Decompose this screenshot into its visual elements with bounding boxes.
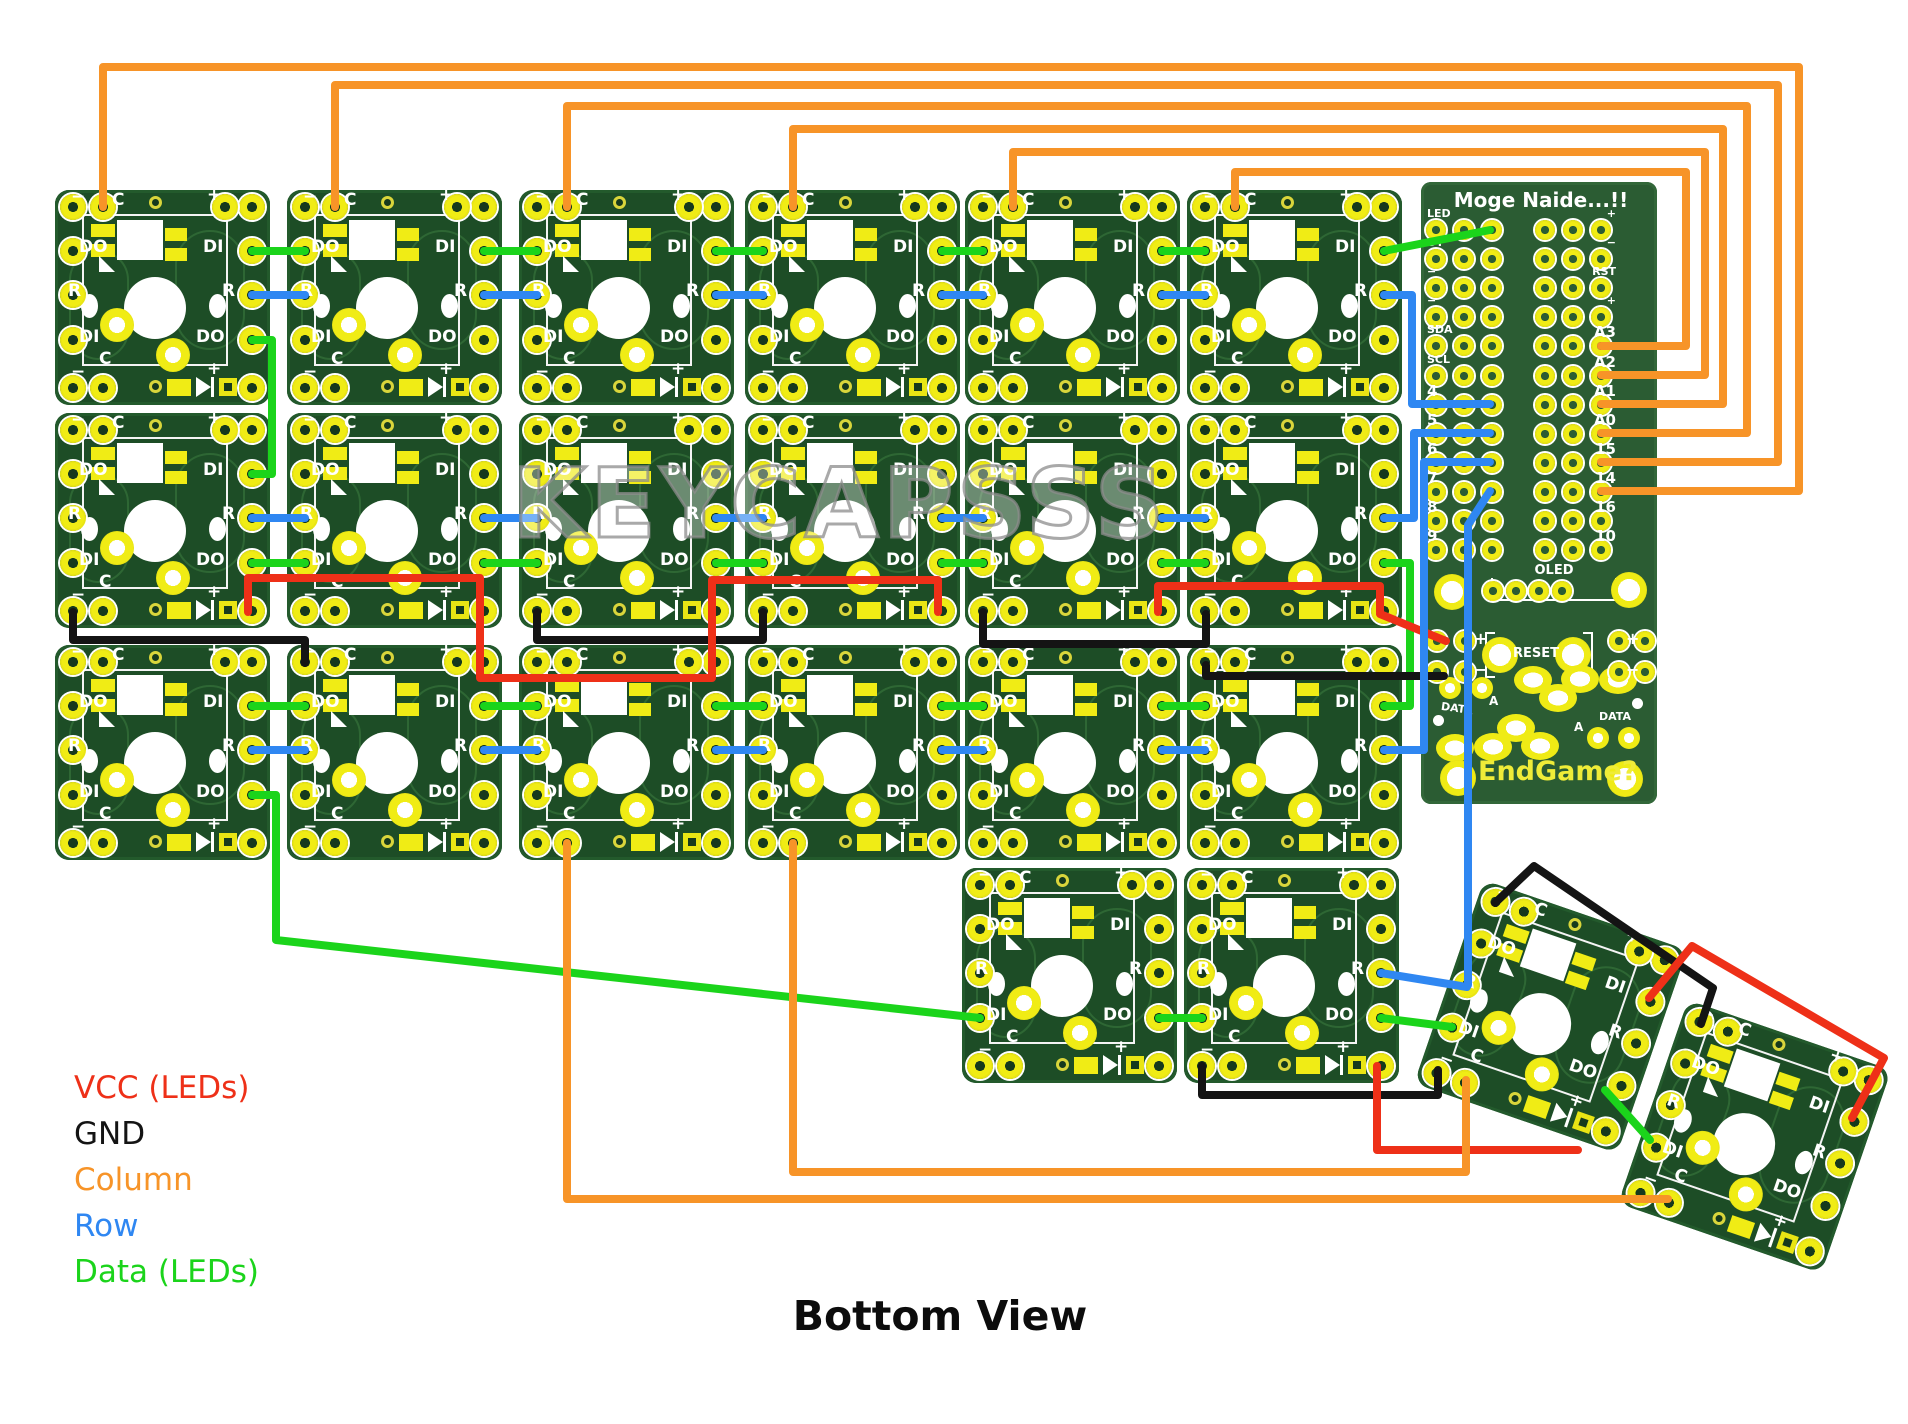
pad-label: DI xyxy=(667,239,687,256)
pad-label: − xyxy=(1494,884,1513,905)
pin1-marker xyxy=(99,479,115,495)
pad-label: C xyxy=(112,647,124,664)
key-pcb-module: −C+DODIRRDIDOC−+ xyxy=(962,868,1177,1083)
pad-label: + xyxy=(897,642,911,659)
pad-label: C xyxy=(1231,574,1243,591)
controller-pin-label: − xyxy=(1427,294,1436,307)
led-pad xyxy=(1297,683,1319,696)
led-footprint xyxy=(807,220,853,260)
pad-label: R xyxy=(68,738,81,755)
pad-label: C xyxy=(1244,192,1256,209)
pad-label: − xyxy=(535,587,549,604)
pad-label: + xyxy=(671,187,685,204)
small-hole xyxy=(381,835,394,848)
controller-pad xyxy=(1455,662,1475,682)
pad-label: + xyxy=(207,361,221,378)
solder-pad xyxy=(1371,782,1397,808)
pad-label: DO xyxy=(79,694,108,711)
pad-label: C xyxy=(112,415,124,432)
diode-pad xyxy=(683,833,701,851)
pad-label: − xyxy=(71,364,85,381)
diode-cathode-bar xyxy=(1121,600,1124,620)
pad-label: C xyxy=(789,806,801,823)
pin1-marker xyxy=(99,256,115,272)
solder-pad xyxy=(1149,693,1175,719)
pad-label: − xyxy=(303,364,317,381)
led-pad xyxy=(1001,224,1025,237)
solder-pad xyxy=(471,830,497,856)
switch-leg-hole xyxy=(332,763,366,797)
solder-pad xyxy=(703,238,729,264)
solder-pad xyxy=(1852,1064,1885,1097)
pad-label: DO xyxy=(989,694,1018,711)
pad-label: DO xyxy=(196,552,225,569)
switch-leg-hole xyxy=(1066,338,1100,372)
pad-label: DO xyxy=(886,784,915,801)
pad-label: C xyxy=(1006,1029,1018,1046)
solder-pad xyxy=(929,238,955,264)
solder-pad xyxy=(322,830,348,856)
solder-pad xyxy=(703,737,729,763)
power-pad-label: + xyxy=(1474,629,1487,648)
solder-pad xyxy=(239,550,265,576)
solder-pad xyxy=(929,693,955,719)
led-pad xyxy=(555,679,579,692)
controller-pin-label: A2 xyxy=(1561,353,1616,371)
endgame-label: EndGame? xyxy=(1478,756,1637,787)
diode-symbol xyxy=(1103,1055,1118,1075)
pad-label: R xyxy=(68,506,81,523)
solder-pad xyxy=(929,194,955,220)
solder-pad xyxy=(703,327,729,353)
pad-label: + xyxy=(439,187,453,204)
led-footprint xyxy=(1027,220,1073,260)
solder-pad xyxy=(1149,327,1175,353)
led-pad xyxy=(165,248,187,261)
controller-pin-pad xyxy=(1535,249,1555,269)
solder-pad xyxy=(1222,830,1248,856)
diode-pad xyxy=(1299,602,1323,619)
led-pad xyxy=(998,902,1022,915)
diode-pad xyxy=(167,379,191,396)
led-pad xyxy=(1297,228,1319,241)
led-pad xyxy=(1075,703,1097,716)
controller-pin-pad xyxy=(1482,540,1502,560)
solder-pad xyxy=(239,461,265,487)
led-pad xyxy=(1223,224,1247,237)
controller-pin-label: A0 xyxy=(1561,411,1616,429)
solder-pad xyxy=(929,282,955,308)
pad-label: − xyxy=(535,189,549,206)
pad-label: + xyxy=(671,816,685,833)
diode-cathode-bar xyxy=(901,377,904,397)
diode-symbol xyxy=(428,377,443,397)
pad-label: + xyxy=(1114,1039,1128,1056)
switch-leg-hole xyxy=(1232,308,1266,342)
legend-item-gnd: GND xyxy=(74,1116,259,1152)
solder-pad xyxy=(239,417,265,443)
pad-label: DI xyxy=(1211,329,1231,346)
pad-label: C xyxy=(1022,192,1034,209)
controller-pin-pad xyxy=(1454,278,1474,298)
small-hole xyxy=(1059,419,1072,432)
solder-pad xyxy=(1371,737,1397,763)
legend-item-row: Row xyxy=(74,1208,259,1244)
pad-label: DI xyxy=(203,239,223,256)
pad-label: + xyxy=(671,584,685,601)
led-pad xyxy=(1294,906,1316,919)
pad-label: C xyxy=(331,351,343,368)
solder-pad xyxy=(239,693,265,719)
solder-pad xyxy=(554,375,580,401)
solder-pad xyxy=(90,830,116,856)
pin1-marker xyxy=(1228,934,1244,950)
controller-pad xyxy=(1506,581,1526,601)
pad-label: DO xyxy=(1106,329,1135,346)
pad-label: − xyxy=(535,412,549,429)
controller-pin-pad xyxy=(1454,482,1474,502)
switch-leg-hole xyxy=(388,561,422,595)
pad-label: DO xyxy=(428,329,457,346)
led-footprint xyxy=(1249,443,1295,483)
pad-label: + xyxy=(897,584,911,601)
pad-label: DI xyxy=(79,552,99,569)
controller-pin-pad xyxy=(1535,336,1555,356)
diode-cathode-bar xyxy=(901,832,904,852)
diode-pad xyxy=(1351,601,1369,619)
pad-label: R xyxy=(454,738,467,755)
switch-leg-hole xyxy=(156,338,190,372)
controller-pin-label: SDA xyxy=(1427,323,1453,336)
pad-label: − xyxy=(1203,364,1217,381)
led-footprint xyxy=(1024,898,1070,938)
switch-leg-hole xyxy=(564,763,598,797)
pad-label: − xyxy=(761,412,775,429)
led-footprint xyxy=(581,220,627,260)
pad-label: + xyxy=(1339,642,1353,659)
led-pad xyxy=(781,679,805,692)
small-hole xyxy=(1281,419,1294,432)
solder-pad xyxy=(471,598,497,624)
diode-symbol xyxy=(1106,832,1121,852)
solder-pad xyxy=(1371,417,1397,443)
solder-pad xyxy=(1146,960,1172,986)
diode-pad xyxy=(1348,1056,1366,1074)
solder-pad xyxy=(1371,282,1397,308)
switch-leg-hole xyxy=(1007,986,1041,1020)
diode-symbol xyxy=(428,832,443,852)
led-pad xyxy=(1072,926,1094,939)
small-hole xyxy=(381,419,394,432)
solder-pad xyxy=(1149,782,1175,808)
led-pad xyxy=(1075,683,1097,696)
pad-label: R xyxy=(222,506,235,523)
diode-pad xyxy=(219,833,237,851)
controller-pin-label: 7 xyxy=(1427,469,1437,487)
key-pcb-module: −C+DODIRRDIDOC−+ xyxy=(55,645,270,860)
pad-label: + xyxy=(439,816,453,833)
pad-label: DI xyxy=(203,694,223,711)
solder-pad xyxy=(929,649,955,675)
solder-pad xyxy=(1149,417,1175,443)
solder-pad xyxy=(703,282,729,308)
small-hole xyxy=(381,603,394,616)
controller-pin-label: 9 xyxy=(1427,527,1437,545)
switch-leg-hole xyxy=(1066,561,1100,595)
led-pad xyxy=(1075,248,1097,261)
switch-leg-hole xyxy=(790,308,824,342)
small-hole xyxy=(1056,1058,1069,1071)
led-footprint xyxy=(117,220,163,260)
controller-pad xyxy=(1427,631,1447,651)
small-hole xyxy=(613,835,626,848)
controller-pad xyxy=(1433,715,1444,726)
solder-pad xyxy=(929,737,955,763)
controller-pin-pad xyxy=(1454,336,1474,356)
diode-pad xyxy=(1129,601,1147,619)
pad-label: DO xyxy=(660,329,689,346)
pad-label: C xyxy=(563,806,575,823)
pad-label: DI xyxy=(769,784,789,801)
diode-pad xyxy=(683,378,701,396)
diode-symbol xyxy=(660,832,675,852)
pad-label: C xyxy=(576,415,588,432)
pad-label: DI xyxy=(1335,694,1355,711)
pad-label: + xyxy=(897,361,911,378)
controller-pin-label: + xyxy=(1561,207,1616,220)
pin1-marker xyxy=(99,711,115,727)
pad-label: R xyxy=(686,738,699,755)
key-pcb-module: −C+DODIRRDIDOC−+ xyxy=(519,190,734,405)
diode-symbol xyxy=(660,377,675,397)
solder-pad xyxy=(90,598,116,624)
small-hole xyxy=(381,651,394,664)
pad-label: + xyxy=(1336,865,1350,882)
pad-label: DO xyxy=(769,239,798,256)
controller-pin-pad xyxy=(1482,249,1502,269)
switch-leg-hole xyxy=(388,338,422,372)
pad-label: C xyxy=(99,574,111,591)
solder-pad xyxy=(929,375,955,401)
pad-label: DO xyxy=(196,329,225,346)
pad-label: − xyxy=(71,189,85,206)
pad-label: C xyxy=(563,574,575,591)
pad-label: + xyxy=(1339,584,1353,601)
pad-label: DO xyxy=(79,462,108,479)
pad-label: C xyxy=(802,647,814,664)
small-hole xyxy=(1281,196,1294,209)
solder-pad xyxy=(1371,194,1397,220)
switch-leg-hole xyxy=(1010,308,1044,342)
controller-pin-pad xyxy=(1535,424,1555,444)
diode-cathode-bar xyxy=(1121,832,1124,852)
solder-pad xyxy=(1371,505,1397,531)
small-hole xyxy=(1281,603,1294,616)
controller-pin-label: − xyxy=(1427,265,1436,278)
solder-pad xyxy=(471,782,497,808)
controller-pin-pad xyxy=(1535,278,1555,298)
led-pad xyxy=(629,703,651,716)
diode-pad xyxy=(1074,1057,1098,1074)
small-hole xyxy=(149,419,162,432)
diode-pad xyxy=(1351,378,1369,396)
solder-pad xyxy=(703,693,729,719)
pad-label: DI xyxy=(989,784,1009,801)
solder-pad xyxy=(929,327,955,353)
diode-pad xyxy=(219,601,237,619)
controller-pin-pad xyxy=(1454,307,1474,327)
pad-label: R xyxy=(1197,961,1210,978)
solder-pad xyxy=(1589,1115,1622,1148)
small-hole xyxy=(1278,874,1291,887)
pad-label: DO xyxy=(989,239,1018,256)
pad-label: − xyxy=(1203,819,1217,836)
solder-pad xyxy=(471,461,497,487)
small-hole xyxy=(839,380,852,393)
pad-label: + xyxy=(207,816,221,833)
pin1-marker xyxy=(563,711,579,727)
pad-label: R xyxy=(1200,283,1213,300)
diode-symbol xyxy=(1328,600,1343,620)
controller-pad xyxy=(1618,727,1640,749)
solder-pad xyxy=(1000,375,1026,401)
controller-pin-pad xyxy=(1454,540,1474,560)
solder-pad xyxy=(471,238,497,264)
pad-label: DO xyxy=(311,462,340,479)
switch-leg-hole xyxy=(100,531,134,565)
solder-pad xyxy=(1371,830,1397,856)
pad-label: − xyxy=(981,587,995,604)
pad-label: R xyxy=(68,283,81,300)
controller-pin-pad xyxy=(1482,307,1502,327)
solder-pad xyxy=(1448,1066,1481,1099)
diode-cathode-bar xyxy=(211,377,214,397)
diode-pad xyxy=(1351,833,1369,851)
pad-label: − xyxy=(1203,587,1217,604)
switch-leg-hole xyxy=(1288,338,1322,372)
solder-pad xyxy=(471,737,497,763)
diode-cathode-bar xyxy=(443,377,446,397)
pad-label: R xyxy=(222,738,235,755)
led-pad xyxy=(629,248,651,261)
pad-label: DI xyxy=(435,239,455,256)
controller-pin-label: − xyxy=(1561,236,1616,249)
small-hole xyxy=(1281,835,1294,848)
diode-cathode-bar xyxy=(211,600,214,620)
controller-pin-label: SCL xyxy=(1427,353,1450,366)
led-pad xyxy=(397,471,419,484)
small-hole xyxy=(149,196,162,209)
solder-pad xyxy=(471,375,497,401)
pad-label: C xyxy=(1244,415,1256,432)
small-hole xyxy=(839,603,852,616)
switch-leg-hole xyxy=(332,531,366,565)
switch-leg-hole xyxy=(620,561,654,595)
controller-pad xyxy=(1552,581,1572,601)
pad-label: − xyxy=(981,819,995,836)
solder-pad xyxy=(1371,375,1397,401)
pad-label: C xyxy=(576,192,588,209)
pad-label: DO xyxy=(543,239,572,256)
led-pad xyxy=(165,228,187,241)
small-hole xyxy=(839,835,852,848)
diode-pad xyxy=(399,602,423,619)
led-pad xyxy=(1297,248,1319,261)
led-pad xyxy=(397,228,419,241)
pad-label: R xyxy=(912,738,925,755)
led-pad xyxy=(165,471,187,484)
pad-label: + xyxy=(1117,816,1131,833)
diode-pad xyxy=(451,378,469,396)
pad-label: C xyxy=(1228,1029,1240,1046)
led-pad xyxy=(629,683,651,696)
solder-pad xyxy=(1149,649,1175,675)
solder-pad xyxy=(1368,960,1394,986)
diode-symbol xyxy=(886,832,901,852)
pad-label: − xyxy=(535,644,549,661)
pad-label: R xyxy=(300,283,313,300)
diode-pad xyxy=(1077,602,1101,619)
pad-label: C xyxy=(1009,574,1021,591)
solder-pad xyxy=(703,375,729,401)
key-pcb-module: −C+DODIRRDIDOC−+ xyxy=(1187,413,1402,628)
pad-label: R xyxy=(1132,283,1145,300)
pad-label: DI xyxy=(1335,239,1355,256)
controller-pad xyxy=(1539,684,1577,712)
solder-pad xyxy=(554,598,580,624)
pad-label: + xyxy=(207,187,221,204)
controller-pin-pad xyxy=(1535,540,1555,560)
key-pcb-module: −C+DODIRRDIDOC−+ xyxy=(745,645,960,860)
diode-pad xyxy=(1572,1111,1595,1134)
pad-label: − xyxy=(981,644,995,661)
key-pcb-module: −C+DODIRRDIDOC−+ xyxy=(55,190,270,405)
solder-pad xyxy=(1793,1235,1826,1268)
solder-pad xyxy=(1222,598,1248,624)
pad-label: − xyxy=(303,644,317,661)
pad-label: C xyxy=(1231,351,1243,368)
pad-label: + xyxy=(439,410,453,427)
pad-label: DO xyxy=(1328,784,1357,801)
pad-label: DO xyxy=(428,784,457,801)
pad-label: DO xyxy=(311,239,340,256)
pad-label: DI xyxy=(79,784,99,801)
key-pcb-module: −C+DODIRRDIDOC−+ xyxy=(1414,880,1687,1153)
switch-leg-hole xyxy=(1010,763,1044,797)
solder-pad xyxy=(1149,737,1175,763)
controller-pad xyxy=(1455,631,1475,651)
solder-pad xyxy=(780,598,806,624)
solder-pad xyxy=(322,598,348,624)
pad-label: + xyxy=(671,361,685,378)
pad-label: DI xyxy=(1332,917,1352,934)
controller-pin-pad xyxy=(1454,453,1474,473)
diode-pad xyxy=(1077,379,1101,396)
solder-pad xyxy=(90,375,116,401)
pad-label: R xyxy=(1200,738,1213,755)
solder-pad xyxy=(1371,649,1397,675)
solder-pad xyxy=(1368,872,1394,898)
solder-pad xyxy=(471,194,497,220)
key-pcb-module: −C+DODIRRDIDOC−+ xyxy=(1184,868,1399,1083)
diode-symbol xyxy=(1328,377,1343,397)
pad-label: − xyxy=(981,364,995,381)
pad-label: DO xyxy=(543,694,572,711)
pad-label: C xyxy=(344,647,356,664)
solder-pad xyxy=(239,830,265,856)
key-pcb-module: −C+DODIRRDIDOC−+ xyxy=(519,645,734,860)
pin1-marker xyxy=(1009,256,1025,272)
